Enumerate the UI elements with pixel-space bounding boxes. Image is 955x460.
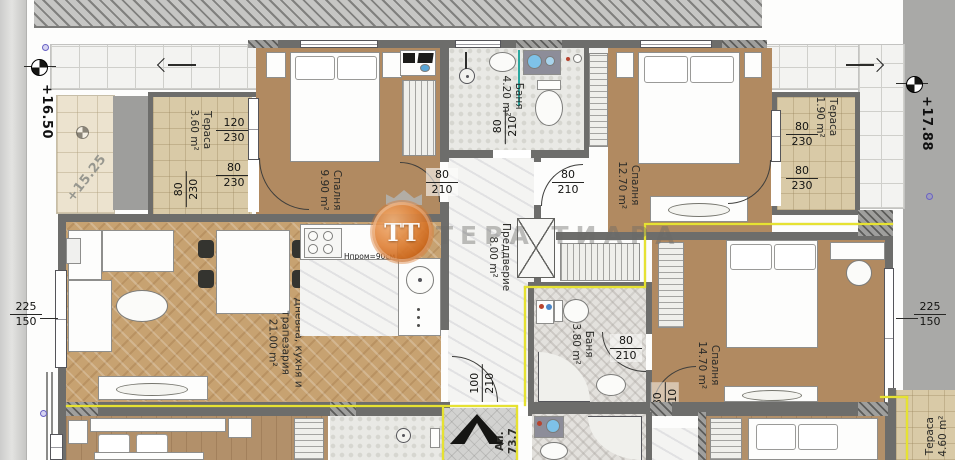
pillow [98,434,130,454]
wall-hatch-3 [722,40,767,48]
walkway-arrow-left-line [168,64,196,66]
toilet-bath-top [535,90,563,126]
dim-window-120-230: 120230 [216,116,252,144]
nightstand [382,52,402,78]
bowl [420,64,430,72]
dim-bedroom-tl-door: 80210 [426,168,458,196]
survey-dot [926,193,933,200]
window-bedroom-tl [300,40,378,48]
bath-r-vanity [536,300,554,324]
dim-door-80-230: 80230 [216,161,252,189]
walkway-right [858,44,905,209]
boundary-v2 [516,407,518,460]
pillow [295,56,335,80]
dining-chair [198,240,214,258]
lower-tile-patch [652,428,698,460]
terrace-tl-door-gap [248,160,259,212]
window-bedroom-tr [640,40,712,48]
living-label: Дневна, кухня и трапезария 21.00 m² [265,288,304,398]
dim-entry-door: 100210 [468,364,496,402]
terrace-br-label: Тераса 4.60 m² [924,413,950,459]
accessory-dot [566,57,570,61]
lower-bed-headboard [90,418,226,432]
slab-level-icon [76,126,89,139]
hall-wall-right-a [534,158,541,162]
window-living-left [55,270,67,368]
pillow [644,56,688,83]
lower-wardrobe-hatch [710,418,742,460]
washer-drum [546,419,560,433]
pillow [798,424,838,450]
dim-door-80-230-rot: 80230 [172,171,200,207]
tap-hot [539,304,544,309]
level-marker-right-icon [906,76,923,93]
left-margin-strip [0,0,27,460]
dresser-bowl [668,203,730,217]
watermark-logo: ТТ [372,202,432,262]
burner [323,244,333,254]
lower-toilet [540,442,568,460]
nightstand [616,52,634,78]
sofa-top [102,230,174,272]
dim-terrace-tr-window: 80230 [786,120,818,148]
level-left-value: +16.50 [36,84,54,142]
tap-cold [546,304,552,310]
burner [323,231,333,241]
bedroom-r-label: Спалня 14.70 m² [695,333,721,397]
survey-dot [40,410,47,417]
lower-bath-a [330,416,442,460]
lower-wardrobe-hatch [294,418,324,460]
coffee-table [116,290,168,322]
stool-bedroom-r [846,260,872,286]
tap-hot [537,421,542,426]
dim-bedroom-tr-door: 80210 [552,168,584,196]
dim-terrace-tr-door: 80230 [786,164,818,192]
window-lower-left [50,434,63,460]
dim-leader-left [40,318,58,319]
dim-window-right: 225150 [914,300,946,328]
dim-bath-top-door: 80210 [491,108,519,144]
terrace-tr-window [771,110,781,162]
kitchen-floor [300,260,398,336]
adjacent-building-hatch [34,0,762,28]
burner [308,231,318,241]
window-bedroom-r [884,268,894,408]
boundary-v1 [442,407,444,460]
wardrobe-bedroom-tr [589,53,608,147]
burner [308,244,318,254]
watermark-initials: ТТ [384,218,420,247]
terrace-tr-door-gap [771,162,781,206]
dim-window-left: 225150 [10,300,42,328]
bath-top-door-gap [493,150,531,158]
lower-wall-hatch [698,412,706,460]
gray-mass [113,96,149,210]
counter-dots [414,308,422,332]
sink-drain [418,278,422,282]
dim-bath-right-door: 80210 [610,334,642,362]
level-right-value: +17.88 [917,96,934,150]
hall-wall-right-b [534,205,541,218]
wall-hatch-b3 [650,402,672,416]
wall-hatch-1 [248,40,278,48]
pillow [337,56,377,80]
dresser-bowl [742,390,802,401]
terrace-tl-window [248,98,259,160]
shower-head-icon [396,428,411,443]
pillow [690,56,734,83]
pillow [756,424,796,450]
survey-dot [42,44,49,51]
pillow [730,244,772,270]
boundary-right-h [880,396,908,398]
hall-wall-left-a [440,48,449,162]
terrace-br-wall [888,388,896,460]
desk-bedroom-r [830,242,885,260]
terrace-tl-label: Тераса 3.60 m² [187,98,213,162]
wall-mounted-unit [66,238,81,264]
sink-bath-right [596,374,626,396]
boundary-bath-left [524,286,526,406]
watermark-name: ТЕРА ТИАРА [436,221,682,250]
dining-chair [198,270,214,288]
level-marker-left-icon [31,59,48,76]
toilet-tank [554,300,563,322]
shower-head-icon [459,68,475,84]
accessory-ring [573,54,582,63]
boundary-right-v [906,396,908,460]
terrace-tr-wall-bottom [772,210,860,215]
window-bath-top [455,40,501,48]
tv-stand-bowl [116,383,188,396]
washer-dial [545,56,555,66]
wall-hatch-2 [516,40,562,48]
washer-drum [527,54,542,69]
tv-screen [417,53,433,63]
floor-plan: +16.50 +17.88 +15.25 Тераса 3.60 m² 1202… [0,0,955,460]
boundary-living [66,405,518,407]
wardrobe-bedroom-tl [402,80,436,156]
rail-line [46,372,48,460]
shower-arm [465,52,467,69]
terrace-tr-wall-right [855,92,860,215]
tv-screen [403,53,415,63]
lower-bed [94,452,204,460]
nightstand [744,52,762,78]
boundary-bath-top [524,286,646,288]
lower-bath-fixture [430,428,440,448]
nightstand [266,52,286,78]
bath-right-label: Баня 3.80 m² [569,312,595,376]
toilet-tank [537,80,561,90]
pillow [136,434,168,454]
pillow [774,244,816,270]
wardrobe-bedroom-r [658,242,684,328]
bedroom-tr-label: Спалня 12.70 m² [615,153,641,217]
lower-wardrobe [68,420,88,444]
bedroom-tl-label: Спалня 9.90 m² [317,158,343,222]
sofa-side [68,280,112,352]
lower-cabinet [228,418,252,438]
